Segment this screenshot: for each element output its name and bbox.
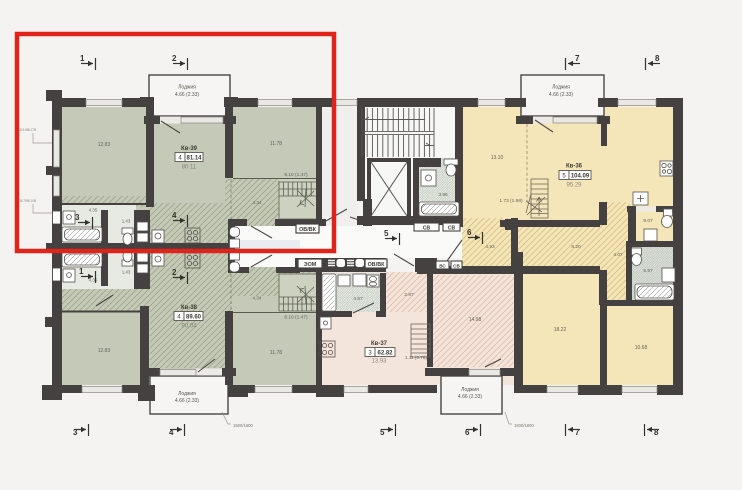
svg-text:89.60: 89.60 xyxy=(186,315,202,321)
svg-text:95.29: 95.29 xyxy=(566,183,582,189)
svg-text:4.66 (2.33): 4.66 (2.33) xyxy=(175,398,200,404)
svg-text:Кв-37: Кв-37 xyxy=(371,341,388,347)
svg-text:4.35: 4.35 xyxy=(89,208,98,213)
svg-text:Лоджия: Лоджия xyxy=(461,387,479,393)
svg-text:7В/70В/10В: 7В/70В/10В xyxy=(18,199,37,203)
svg-text:СВ: СВ xyxy=(448,226,456,232)
svg-text:ОВ/ВК: ОВ/ВК xyxy=(299,227,316,233)
svg-text:Кв-39: Кв-39 xyxy=(181,146,198,152)
svg-text:СВ: СВ xyxy=(423,226,431,232)
svg-text:4.35: 4.35 xyxy=(89,278,98,283)
svg-text:Кв-38: Кв-38 xyxy=(181,305,198,311)
svg-text:Лоджия: Лоджия xyxy=(178,391,196,397)
svg-text:1.11 (0.78): 1.11 (0.78) xyxy=(405,355,427,360)
svg-text:11.78: 11.78 xyxy=(270,141,282,147)
svg-text:8: 8 xyxy=(655,54,660,63)
svg-text:8.10 (1.47): 8.10 (1.47) xyxy=(284,315,308,321)
svg-text:5.97: 5.97 xyxy=(643,268,653,274)
svg-text:85/1НВ/17В: 85/1НВ/17В xyxy=(18,128,37,132)
svg-text:4.34: 4.34 xyxy=(253,296,262,301)
svg-text:1: 1 xyxy=(79,267,84,276)
svg-text:9.07: 9.07 xyxy=(643,218,653,224)
svg-text:6: 6 xyxy=(467,228,472,237)
svg-text:ВС: ВС xyxy=(439,264,446,269)
svg-text:12.83: 12.83 xyxy=(98,348,111,354)
svg-text:5: 5 xyxy=(384,229,389,238)
svg-text:104.09: 104.09 xyxy=(571,174,590,180)
svg-text:1,43: 1,43 xyxy=(122,270,131,275)
svg-text:81.14: 81.14 xyxy=(186,156,202,162)
svg-text:ОВ/ВК: ОВ/ВК xyxy=(368,262,385,268)
svg-text:4.07: 4.07 xyxy=(613,252,623,258)
svg-text:2.87: 2.87 xyxy=(404,292,414,298)
svg-text:8.20: 8.20 xyxy=(571,244,581,250)
svg-text:ЭОМ: ЭОМ xyxy=(304,262,317,268)
svg-text:13.10: 13.10 xyxy=(491,155,504,161)
svg-text:4.66 (2.33): 4.66 (2.33) xyxy=(549,92,574,98)
svg-text:2: 2 xyxy=(172,54,177,63)
svg-text:90.04: 90.04 xyxy=(181,324,197,330)
svg-text:12.83: 12.83 xyxy=(98,142,111,148)
svg-text:3.96: 3.96 xyxy=(438,192,448,198)
svg-text:11.78: 11.78 xyxy=(270,350,282,356)
svg-text:13.93: 13.93 xyxy=(371,359,387,365)
svg-text:80.11: 80.11 xyxy=(182,165,197,171)
svg-text:1.73 (1.98): 1.73 (1.98) xyxy=(499,198,523,204)
svg-text:7: 7 xyxy=(575,54,580,63)
svg-text:1: 1 xyxy=(80,54,85,63)
svg-text:1500/1600: 1500/1600 xyxy=(233,423,253,428)
svg-text:4: 4 xyxy=(172,211,177,220)
svg-text:4.57: 4.57 xyxy=(353,296,363,302)
svg-text:1,43: 1,43 xyxy=(122,219,131,224)
svg-text:Лоджия: Лоджия xyxy=(552,85,570,91)
svg-text:4.93: 4.93 xyxy=(485,244,495,250)
svg-text:4.66 (2.33): 4.66 (2.33) xyxy=(175,92,200,98)
svg-text:1500/1600: 1500/1600 xyxy=(514,423,534,428)
svg-text:18.22: 18.22 xyxy=(554,327,567,333)
svg-text:СВ: СВ xyxy=(453,264,460,269)
svg-text:Кв-36: Кв-36 xyxy=(566,164,583,170)
svg-text:14.98: 14.98 xyxy=(469,317,482,323)
svg-text:8.10 (1.47): 8.10 (1.47) xyxy=(284,172,308,178)
svg-text:62.82: 62.82 xyxy=(377,351,393,357)
svg-text:4.34: 4.34 xyxy=(253,200,262,205)
svg-text:10.68: 10.68 xyxy=(635,345,648,351)
svg-text:2: 2 xyxy=(172,268,177,277)
svg-text:3: 3 xyxy=(75,213,80,222)
svg-text:Лоджия: Лоджия xyxy=(178,85,196,91)
svg-text:4.66 (2.33): 4.66 (2.33) xyxy=(458,394,483,400)
